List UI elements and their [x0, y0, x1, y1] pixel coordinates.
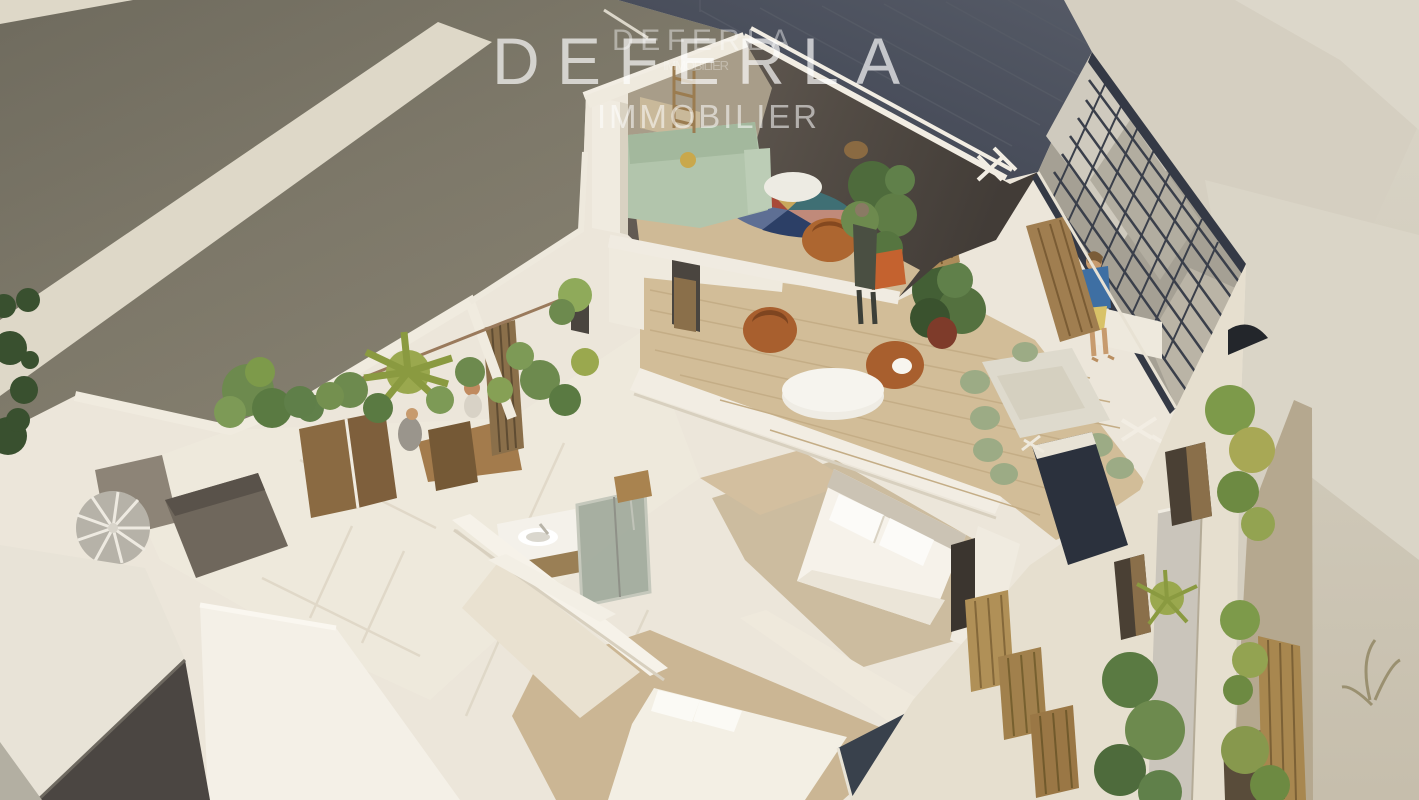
svg-text:IMMOBILIER: IMMOBILIER: [597, 98, 819, 135]
svg-text:DEFERLA: DEFERLA: [492, 24, 916, 98]
